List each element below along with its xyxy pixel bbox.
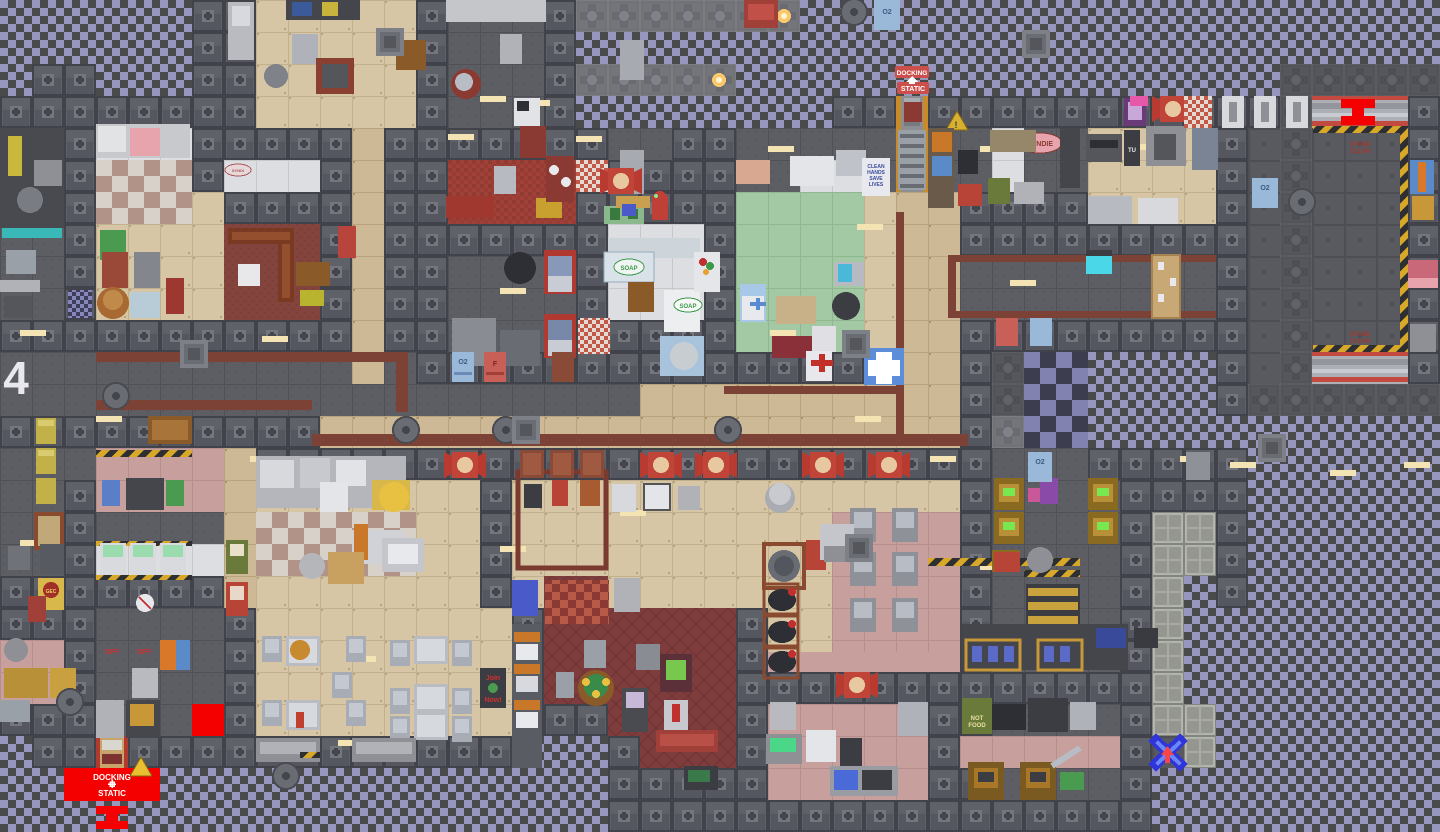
svg-text:STAND: STAND: [1350, 142, 1371, 148]
svg-text:Now!: Now!: [484, 697, 501, 704]
svg-text:4: 4: [3, 352, 29, 404]
svg-text:OFF: OFF: [105, 649, 120, 656]
svg-text:SOAP: SOAP: [620, 266, 637, 272]
svg-text:FOOD: FOOD: [968, 723, 986, 729]
svg-text:!: !: [955, 120, 958, 130]
svg-text:TU: TU: [1128, 148, 1136, 154]
svg-text:DOCKING: DOCKING: [897, 70, 928, 77]
svg-text:Join: Join: [486, 675, 500, 682]
svg-text:O2: O2: [458, 359, 467, 366]
svg-text:O2: O2: [1035, 459, 1044, 466]
svg-text:F: F: [493, 361, 498, 368]
svg-text:STAND: STAND: [1350, 332, 1371, 338]
svg-text:LIVES: LIVES: [869, 182, 884, 188]
svg-text:CLEAR: CLEAR: [1350, 339, 1371, 345]
svg-text:OFF: OFF: [137, 649, 152, 656]
svg-text:SOAP: SOAP: [679, 304, 696, 310]
svg-text:CLEAR: CLEAR: [1350, 149, 1371, 155]
svg-text:STATIC: STATIC: [901, 86, 925, 93]
svg-text:O2: O2: [1260, 185, 1269, 192]
svg-text:NOT: NOT: [971, 716, 984, 722]
svg-text:GEC: GEC: [46, 589, 57, 595]
svg-text:STATIC: STATIC: [98, 789, 126, 798]
svg-text:SYNDI: SYNDI: [232, 168, 244, 173]
svg-text:O2: O2: [882, 9, 891, 16]
